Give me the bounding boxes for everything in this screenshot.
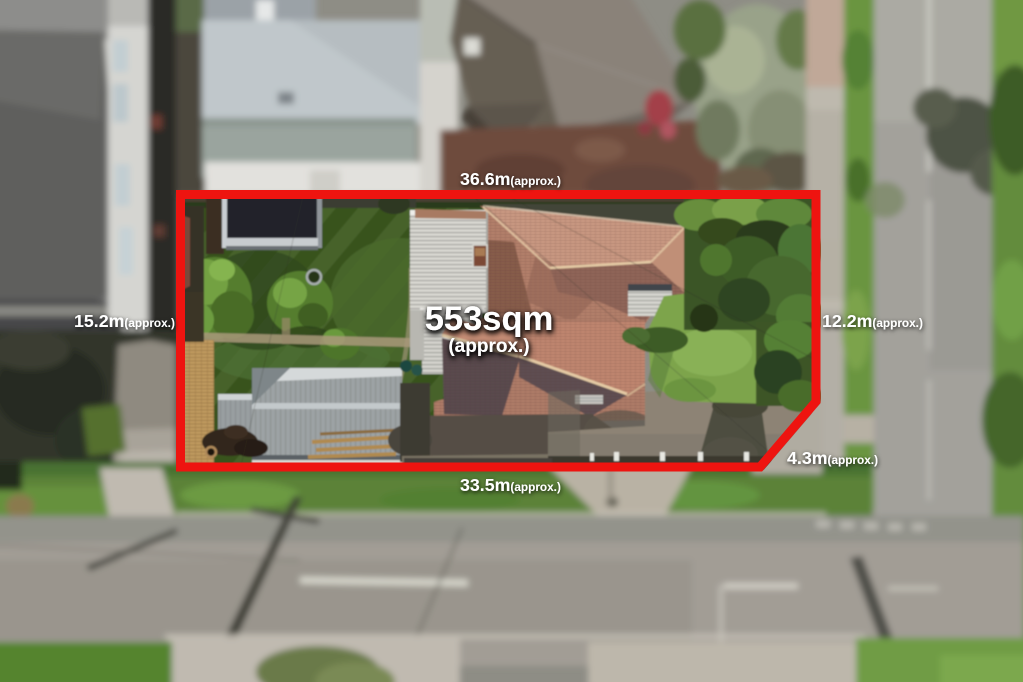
svg-text:553sqm: 553sqm [425,300,554,338]
svg-text:(approx.): (approx.) [448,336,529,357]
